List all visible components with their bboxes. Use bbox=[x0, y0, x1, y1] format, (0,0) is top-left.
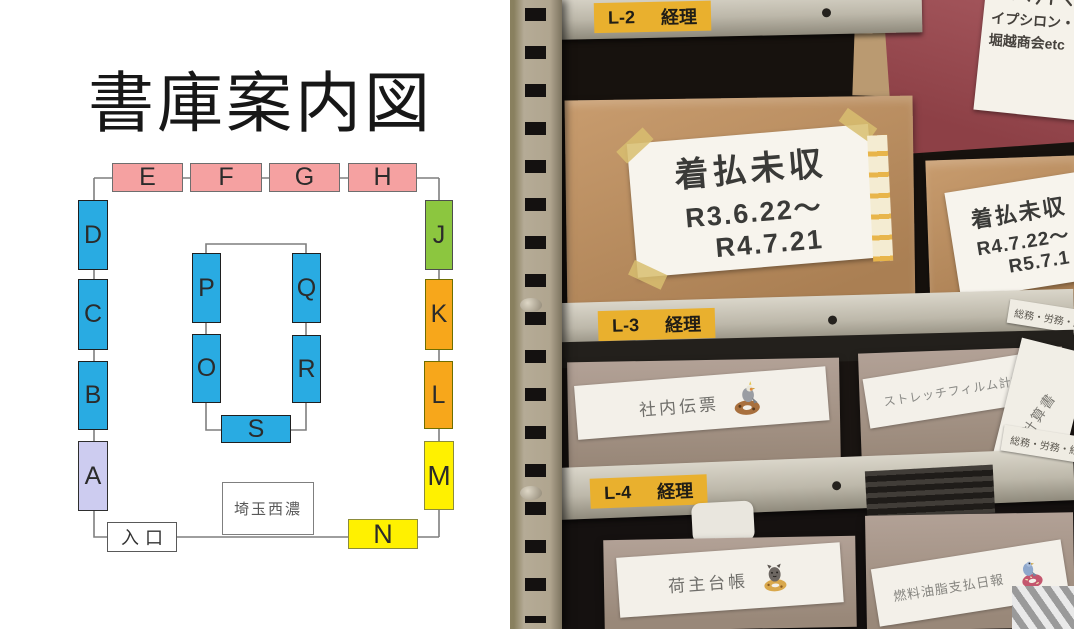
map-room-f: F bbox=[190, 163, 262, 192]
map-entrance: 入口 bbox=[107, 522, 177, 552]
shelf-hole bbox=[822, 8, 831, 17]
map-room-g: G bbox=[269, 163, 340, 192]
file-box-label-text: 社内伝票 bbox=[638, 389, 720, 420]
map-room-e: E bbox=[112, 163, 183, 192]
map-room-m: M bbox=[424, 441, 454, 510]
masking-tape bbox=[628, 260, 667, 290]
cat-on-donut-illustration bbox=[757, 559, 793, 595]
file-box-ninushi-daicho: 荷主台帳 bbox=[603, 536, 857, 629]
shelving-upright-post bbox=[510, 0, 562, 629]
map-room-l: L bbox=[424, 361, 453, 429]
file-box-shanai-denpyo: 社内伝票 bbox=[567, 358, 841, 475]
map-room-a: A bbox=[78, 441, 108, 511]
cardboard-box-1-label: 着払未収 R3.6.22～ R4.7.21 bbox=[627, 124, 879, 278]
file-box-label: 社内伝票 bbox=[574, 366, 829, 440]
map-room-r: R bbox=[292, 335, 321, 403]
cockatiel-on-donut-illustration bbox=[727, 380, 766, 419]
bolt bbox=[520, 486, 542, 500]
screenshot-root: 書庫案内図 E F G H D C B A J K L M N P Q O R … bbox=[0, 0, 1074, 629]
file-box-label-text: 燃料油脂支払日報 bbox=[892, 568, 1006, 604]
shelf-tag-l3: L-3 経理 bbox=[598, 308, 716, 341]
shelf-hole bbox=[828, 315, 837, 324]
shelf-tag-code: L-4 bbox=[604, 482, 632, 504]
shelf-photo-panel: イプシロン・松 堀越商会etc 着払未収 R3.6.22～ R4.7.21 着払… bbox=[510, 0, 1074, 629]
map-room-j: J bbox=[425, 200, 453, 270]
shelf-tag-code: L-3 bbox=[612, 314, 640, 336]
cardboard-box-1: 着払未収 R3.6.22～ R4.7.21 bbox=[565, 96, 916, 317]
map-room-c: C bbox=[78, 279, 108, 350]
map-room-n: N bbox=[348, 519, 418, 549]
map-office-saitama-seino: 埼玉西濃 bbox=[222, 482, 314, 535]
stacked-papers bbox=[865, 465, 995, 520]
floor-map-panel: 書庫案内図 E F G H D C B A J K L M N P Q O R … bbox=[0, 0, 510, 629]
shelf-tag-l4: L-4 経理 bbox=[590, 474, 708, 508]
map-room-s: S bbox=[221, 415, 291, 443]
note-line-2: 堀越商会etc bbox=[988, 29, 1074, 58]
map-room-b: B bbox=[78, 361, 108, 430]
map-room-o: O bbox=[192, 334, 221, 403]
file-box-label: 荷主台帳 bbox=[616, 542, 844, 617]
post-slot-holes bbox=[525, 8, 546, 623]
shelf-tag-dept: 経理 bbox=[661, 3, 698, 30]
shelf-tag-l2: L-2 経理 bbox=[594, 1, 712, 33]
bolt bbox=[520, 298, 542, 312]
calendar-strip bbox=[867, 135, 893, 262]
shrink-wrapped-bundle bbox=[1012, 586, 1074, 629]
shelf-hole bbox=[832, 481, 841, 490]
map-room-q: Q bbox=[292, 253, 321, 323]
shelf-tag-code: L-2 bbox=[608, 7, 635, 29]
map-room-h: H bbox=[348, 163, 417, 192]
map-room-k: K bbox=[425, 279, 453, 350]
shelf-tag-dept: 経理 bbox=[665, 310, 702, 337]
file-box-label-text: 荷主台帳 bbox=[667, 566, 749, 597]
cardboard-box-2-label: 着払未収 R4.7.22～ R5.7.1 bbox=[944, 171, 1074, 300]
map-room-d: D bbox=[78, 200, 108, 270]
map-room-p: P bbox=[192, 253, 221, 323]
masking-tape bbox=[616, 127, 653, 163]
shelf-tag-dept: 経理 bbox=[657, 477, 694, 504]
handwritten-note-paper: イプシロン・松 堀越商会etc bbox=[973, 0, 1074, 122]
